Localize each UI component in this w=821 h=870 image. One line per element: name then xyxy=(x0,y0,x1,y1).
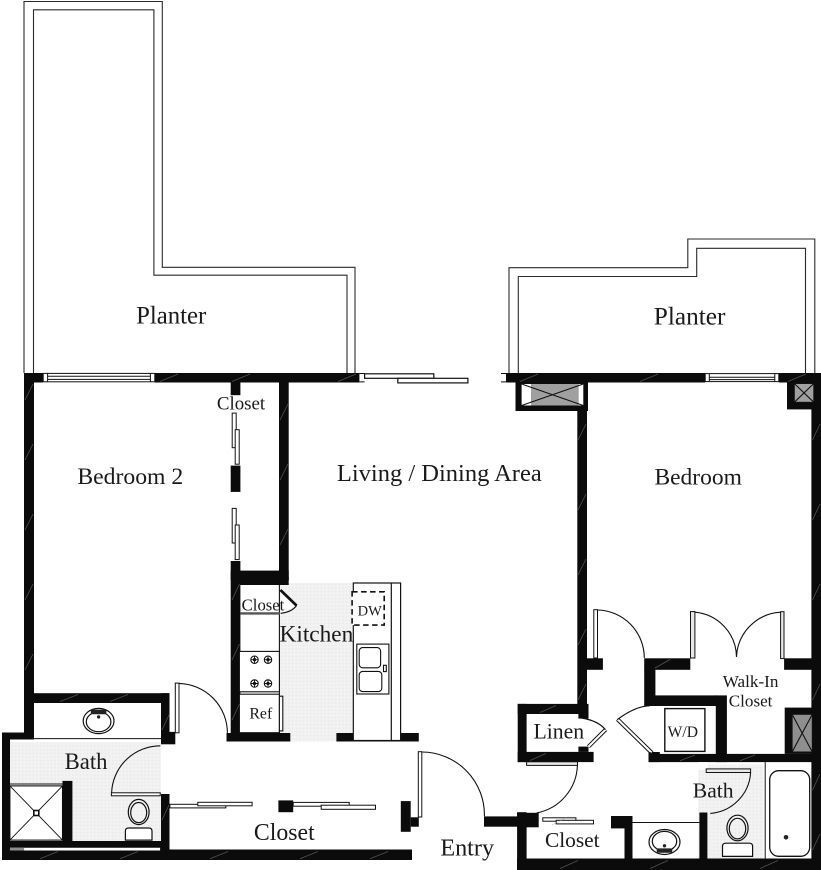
svg-text:Kitchen: Kitchen xyxy=(280,622,354,648)
svg-text:Planter: Planter xyxy=(654,302,726,330)
svg-text:DW: DW xyxy=(358,604,382,620)
svg-text:Closet: Closet xyxy=(242,596,285,615)
svg-text:Living / Dining Area: Living / Dining Area xyxy=(337,460,542,487)
svg-text:W/D: W/D xyxy=(668,724,698,741)
svg-text:Bath: Bath xyxy=(693,779,734,803)
svg-text:Closet: Closet xyxy=(217,394,266,415)
svg-text:Bath: Bath xyxy=(65,749,109,774)
svg-text:Closet: Closet xyxy=(254,820,315,846)
svg-text:Ref: Ref xyxy=(249,706,273,723)
svg-text:Walk-In: Walk-In xyxy=(723,672,779,691)
svg-text:Bedroom: Bedroom xyxy=(654,464,741,490)
svg-text:Linen: Linen xyxy=(534,719,585,743)
svg-text:Closet: Closet xyxy=(545,828,600,852)
svg-text:Entry: Entry xyxy=(440,835,494,862)
svg-text:Planter: Planter xyxy=(136,303,207,330)
svg-text:Closet: Closet xyxy=(729,692,773,711)
svg-text:Bedroom 2: Bedroom 2 xyxy=(77,464,183,490)
